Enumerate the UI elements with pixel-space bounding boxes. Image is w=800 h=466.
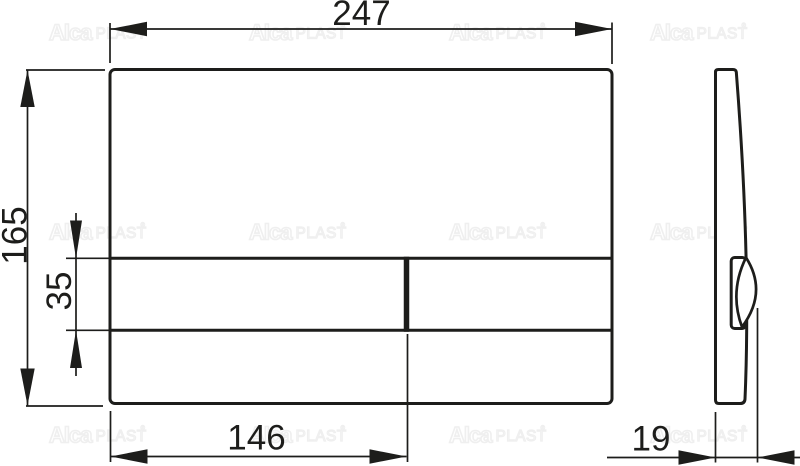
svg-text:247: 247 (332, 0, 390, 33)
svg-text:19: 19 (632, 420, 671, 459)
svg-text:165: 165 (0, 206, 35, 264)
svg-text:®: ® (742, 23, 747, 30)
svg-text:146: 146 (227, 419, 285, 458)
svg-text:Alca: Alca (650, 20, 694, 45)
svg-text:Alca: Alca (249, 20, 293, 45)
svg-text:Alca: Alca (49, 20, 93, 45)
svg-text:Alca: Alca (449, 20, 493, 45)
svg-text:PLAST: PLAST (697, 26, 748, 43)
svg-text:35: 35 (40, 272, 79, 311)
svg-text:PLAST: PLAST (496, 26, 547, 43)
